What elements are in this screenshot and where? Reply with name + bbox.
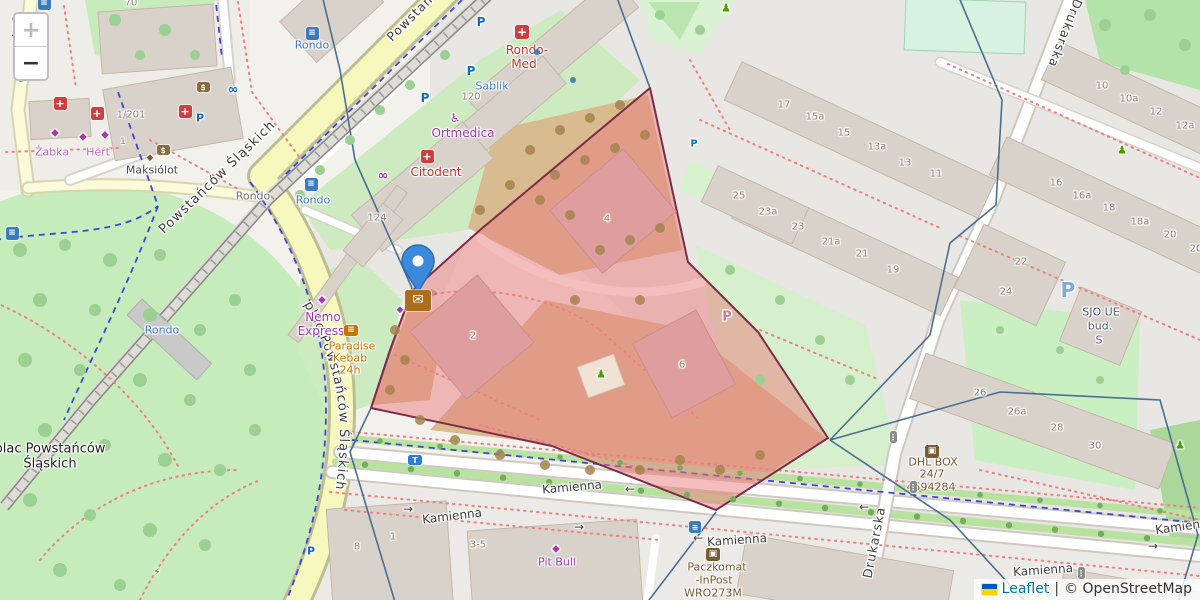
zoom-out-button[interactable]: −: [15, 47, 47, 79]
leaflet-link[interactable]: Leaflet: [1002, 581, 1050, 597]
zoom-in-button[interactable]: +: [15, 14, 47, 47]
basemap-svg: Powstańców Śląskich Powstańców Śląskich …: [0, 0, 1200, 600]
attribution-separator: |: [1054, 581, 1059, 597]
attribution-bar: Leaflet | © OpenStreetMap: [974, 579, 1200, 600]
map-canvas[interactable]: Powstańców Śląskich Powstańców Śląskich …: [0, 0, 1200, 600]
openstreetmap-link[interactable]: © OpenStreetMap: [1064, 581, 1192, 597]
ukraine-flag-icon: [982, 584, 997, 595]
zoom-control: + −: [13, 12, 49, 81]
